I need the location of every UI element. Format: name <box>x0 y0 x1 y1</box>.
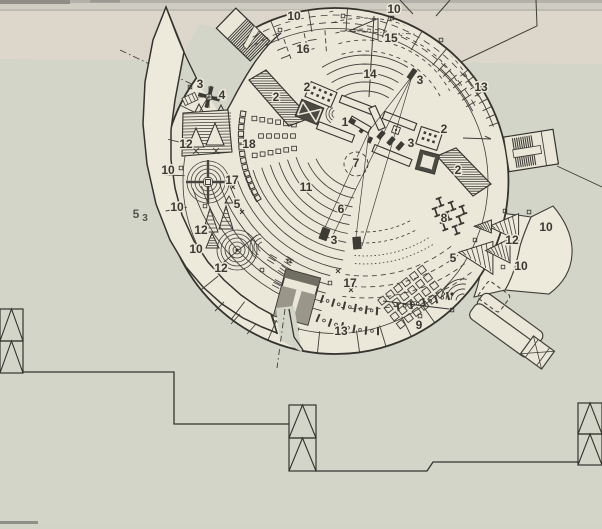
svg-text:4: 4 <box>219 88 226 102</box>
svg-text:3: 3 <box>331 233 338 247</box>
svg-text:2: 2 <box>273 90 280 104</box>
svg-text:10: 10 <box>514 259 528 273</box>
svg-text:5: 5 <box>450 251 457 265</box>
svg-text:3: 3 <box>142 213 148 224</box>
svg-text:2: 2 <box>441 122 448 136</box>
svg-text:17: 17 <box>343 276 357 290</box>
svg-text:9: 9 <box>416 318 423 332</box>
svg-text:3: 3 <box>408 136 415 150</box>
svg-text:10: 10 <box>161 163 175 177</box>
svg-text:13: 13 <box>334 324 348 338</box>
svg-text:12: 12 <box>214 261 228 275</box>
svg-text:2: 2 <box>304 80 311 94</box>
svg-text:13: 13 <box>474 80 488 94</box>
svg-text:8: 8 <box>441 211 448 225</box>
svg-text:11: 11 <box>300 180 313 194</box>
svg-text:12: 12 <box>505 233 519 247</box>
svg-text:5: 5 <box>133 207 140 221</box>
svg-text:12: 12 <box>194 223 208 237</box>
svg-text:6: 6 <box>338 202 345 216</box>
svg-text:3: 3 <box>417 73 424 87</box>
svg-text:2: 2 <box>455 163 462 177</box>
svg-text:14: 14 <box>363 67 377 81</box>
svg-text:3: 3 <box>197 77 204 91</box>
svg-text:12: 12 <box>179 137 193 151</box>
svg-text:10: 10 <box>387 2 401 16</box>
svg-text:10: 10 <box>287 9 301 23</box>
svg-text:16: 16 <box>296 42 310 56</box>
svg-text:15: 15 <box>384 31 398 45</box>
svg-text:17: 17 <box>225 173 239 187</box>
svg-text:10: 10 <box>170 200 184 214</box>
svg-text:1: 1 <box>342 115 349 129</box>
svg-text:10: 10 <box>539 220 553 234</box>
svg-text:10: 10 <box>189 242 203 256</box>
svg-text:5: 5 <box>234 197 241 211</box>
svg-text:18: 18 <box>242 137 256 151</box>
svg-text:7: 7 <box>353 156 360 170</box>
